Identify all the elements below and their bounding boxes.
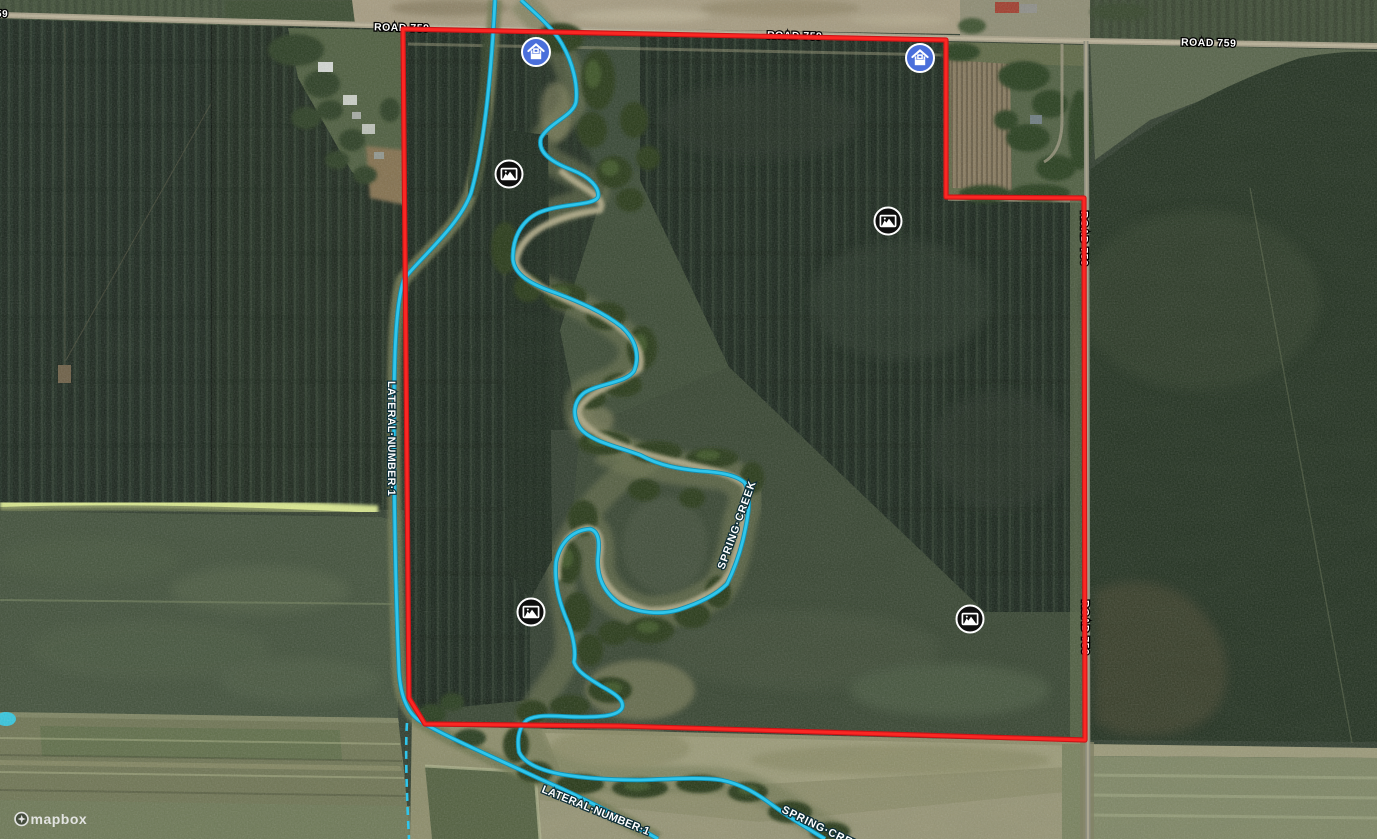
svg-text:LATERAL·NUMBER·1: LATERAL·NUMBER·1 <box>385 381 397 496</box>
svg-text:mapbox: mapbox <box>31 811 88 827</box>
svg-text:ROAD 759: ROAD 759 <box>1181 36 1237 49</box>
svg-text:59: 59 <box>0 9 8 20</box>
